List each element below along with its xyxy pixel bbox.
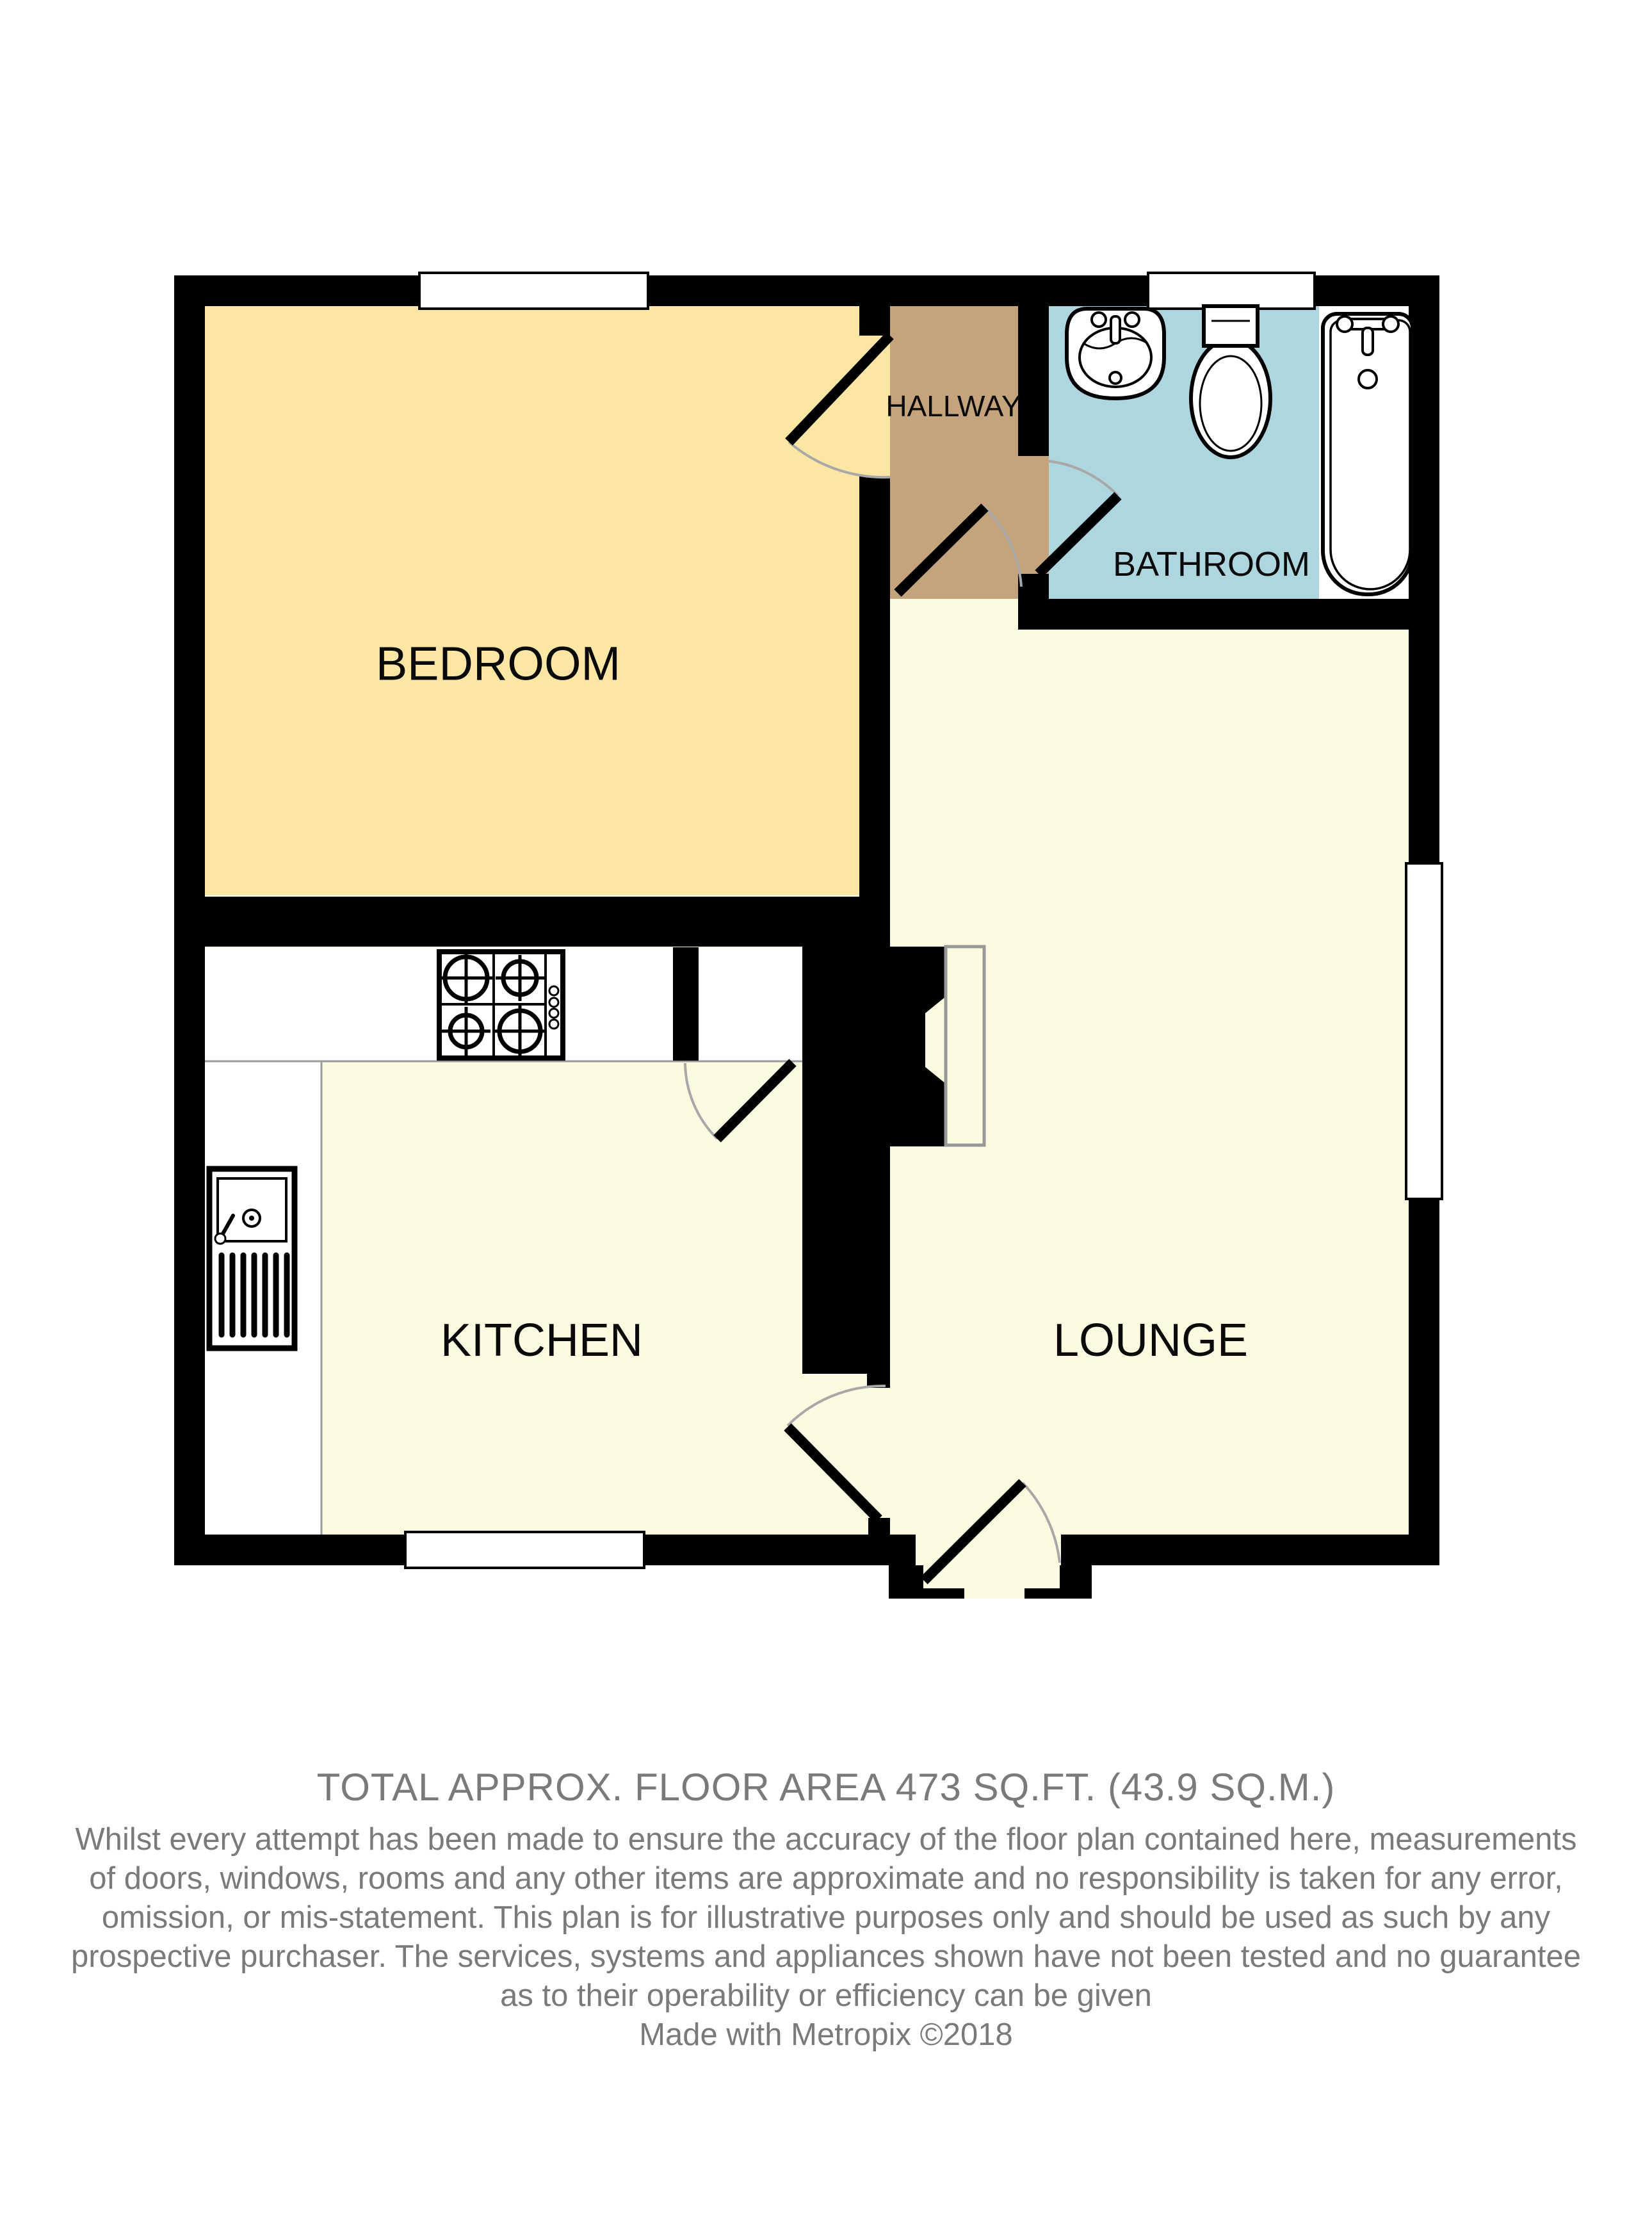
- sink-drainer: [222, 1255, 287, 1335]
- porch-cap-left: [889, 1588, 964, 1599]
- sink-plug-dot: [249, 1216, 254, 1221]
- disclaimer-line: of doors, windows, rooms and any other i…: [0, 1859, 1652, 1898]
- doorway-threshold: [699, 947, 802, 1061]
- bedroom-floor: [205, 306, 890, 895]
- wall-bathroom-south: [1018, 599, 1439, 630]
- wall-counter-divider: [673, 947, 699, 1061]
- sink-tap-left: [1092, 313, 1106, 327]
- wall-bedroom-south: [174, 897, 890, 947]
- disclaimer-line: Whilst every attempt has been made to en…: [0, 1820, 1652, 1859]
- toilet-bowl: [1191, 339, 1270, 457]
- wall-hall-bath-stub: [1018, 574, 1049, 599]
- kitchen-sink-icon: [209, 1169, 295, 1348]
- disclaimer-line: prospective purchaser. The services, sys…: [0, 1937, 1652, 1976]
- sink-tap-right: [1125, 313, 1139, 327]
- bathtub-icon: [1323, 314, 1413, 594]
- sink-drain: [1110, 372, 1121, 384]
- disclaimer-text: Whilst every attempt has been made to en…: [0, 1820, 1652, 2055]
- lounge-window: [1406, 863, 1442, 1199]
- lounge-label: LOUNGE: [1053, 1315, 1248, 1366]
- wall-kitchen-east: [802, 947, 890, 1374]
- bedroom-window: [419, 273, 648, 309]
- wall-bottom-right: [1061, 1535, 1439, 1565]
- sink-tap-base: [215, 1234, 225, 1244]
- floorplan-page: BEDROOM HALLWAY BATHROOM KITCHEN LOUNGE …: [0, 0, 1652, 2216]
- bathtub-spout: [1363, 328, 1373, 355]
- hearth: [946, 947, 984, 1145]
- hob-icon: [438, 952, 563, 1058]
- bathroom-label: BATHROOM: [1113, 545, 1310, 583]
- toilet-icon: [1191, 306, 1270, 457]
- bedroom-label: BEDROOM: [376, 637, 620, 690]
- kitchen-label: KITCHEN: [441, 1315, 643, 1366]
- made-with-metropix-credit: Made with Metropix ©2018: [0, 2016, 1652, 2055]
- sink-spout: [1111, 316, 1120, 343]
- hallway-label: HALLWAY: [886, 389, 1021, 423]
- kitchen-window: [405, 1532, 644, 1568]
- disclaimer-line: omission, or mis-statement. This plan is…: [0, 1898, 1652, 1937]
- disclaimer-line: as to their operability or efficiency ca…: [0, 1976, 1652, 2016]
- bathtub-drain: [1359, 370, 1377, 388]
- chimney-breast: [890, 947, 984, 1146]
- toilet-cistern: [1204, 306, 1258, 346]
- wall-hall-bath-upper: [1018, 306, 1049, 456]
- wall-bedroom-east-lower: [859, 477, 890, 897]
- porch-cap-right: [1024, 1588, 1092, 1599]
- wall-bedroom-east-upper: [859, 306, 890, 336]
- bathroom-sink-icon: [1067, 309, 1164, 398]
- wall-entrance-jamb: [868, 1518, 890, 1565]
- total-floor-area-text: TOTAL APPROX. FLOOR AREA 473 SQ.FT. (43.…: [0, 1766, 1652, 1809]
- bathroom-window: [1148, 273, 1315, 309]
- bathtub-tap-knob-left: [1337, 316, 1352, 332]
- bathtub-tap-knob-right: [1383, 316, 1398, 332]
